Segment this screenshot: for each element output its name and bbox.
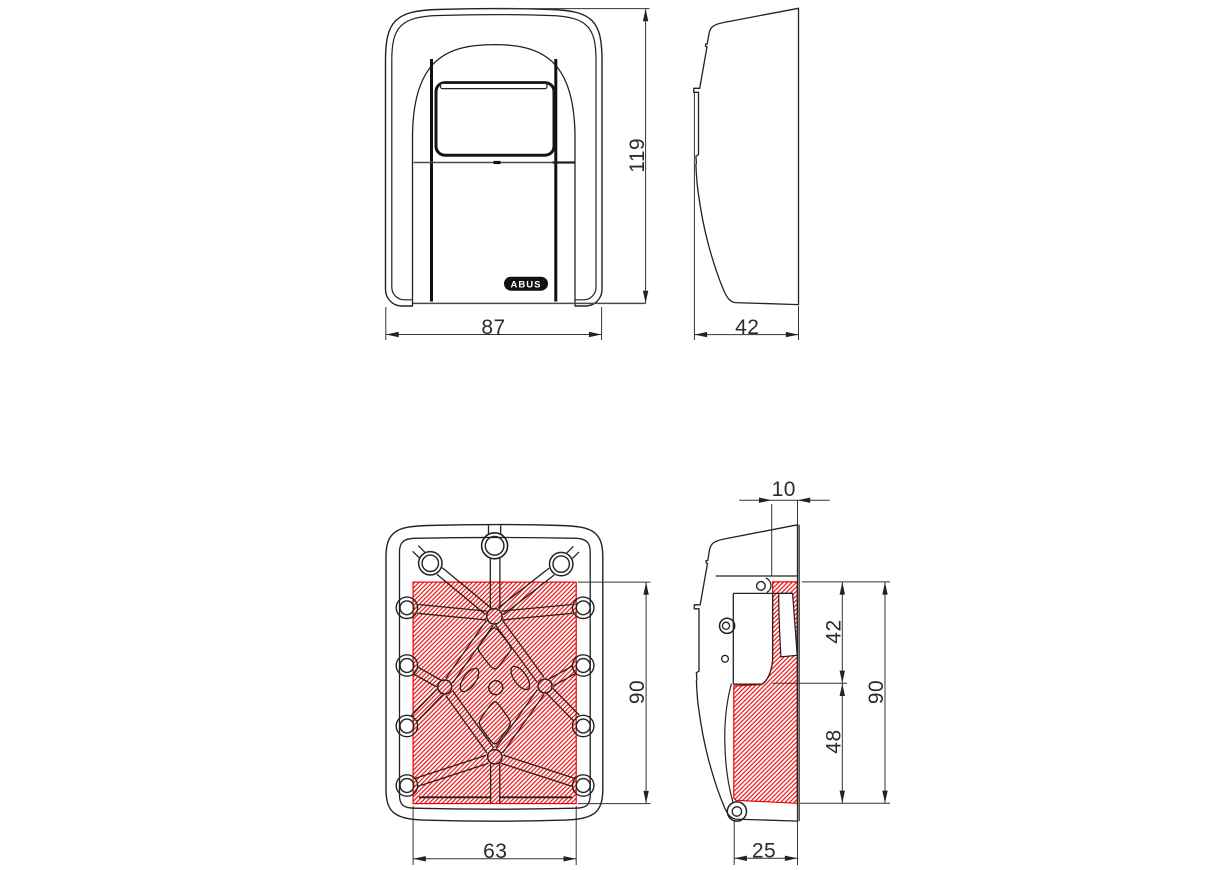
svg-text:25: 25 [752, 840, 776, 863]
svg-text:87: 87 [481, 316, 505, 339]
svg-text:90: 90 [626, 680, 649, 704]
svg-text:ABUS: ABUS [511, 279, 542, 290]
svg-text:48: 48 [823, 729, 846, 753]
svg-text:63: 63 [483, 840, 507, 863]
svg-text:119: 119 [626, 138, 649, 173]
svg-text:42: 42 [735, 316, 759, 339]
svg-text:10: 10 [772, 478, 796, 501]
svg-text:42: 42 [823, 619, 846, 643]
svg-text:90: 90 [865, 680, 888, 704]
